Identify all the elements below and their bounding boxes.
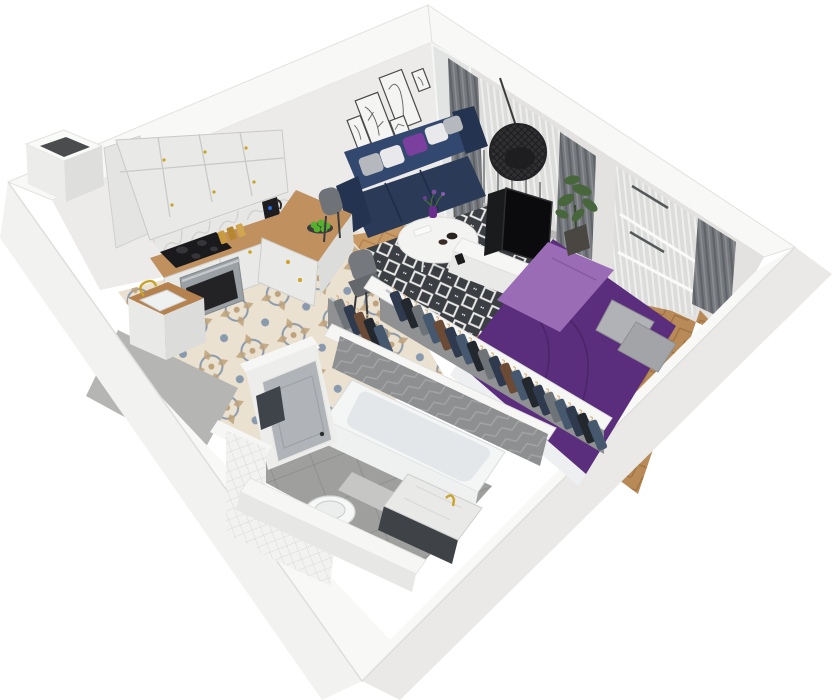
table-bowl-2: [439, 239, 448, 245]
drawer-gold-knob: [248, 250, 252, 254]
peninsula-knob-2: [298, 278, 302, 282]
egg-chair-cushion: [505, 147, 535, 169]
table-bowl: [447, 233, 458, 240]
table-shadow: [430, 265, 446, 271]
apartment-render: [0, 0, 834, 700]
door-handle: [320, 432, 324, 436]
floorplan-3d-view[interactable]: [0, 0, 834, 700]
peninsula-knob: [286, 260, 290, 264]
